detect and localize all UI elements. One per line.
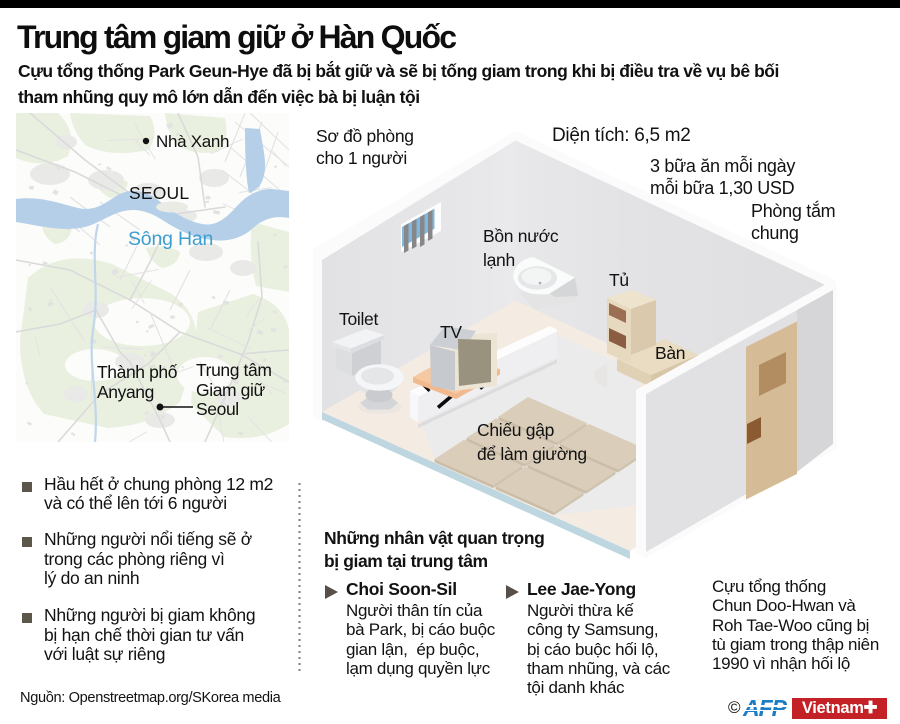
svg-text:Chiếu gập: Chiếu gập [477,420,554,440]
svg-text:Diện tích: 6,5 m2: Diện tích: 6,5 m2 [552,125,691,146]
svg-text:Bồn nước: Bồn nước [483,226,559,246]
svg-text:mỗi bữa 1,30 USD: mỗi bữa 1,30 USD [650,177,795,198]
svg-text:3 bữa ăn mỗi ngày: 3 bữa ăn mỗi ngày [650,155,795,176]
svg-text:chung: chung [751,223,799,243]
svg-text:Phòng tắm: Phòng tắm [751,200,835,221]
svg-text:Toilet: Toilet [339,309,378,329]
svg-text:để làm giường: để làm giường [477,444,587,464]
svg-text:Bàn: Bàn [655,343,685,363]
svg-text:lạnh: lạnh [483,250,515,270]
svg-text:Sơ đồ phòng: Sơ đồ phòng [316,126,414,146]
svg-text:TV: TV [440,322,462,342]
svg-text:cho 1 người: cho 1 người [316,148,407,168]
svg-text:Tủ: Tủ [609,270,629,290]
